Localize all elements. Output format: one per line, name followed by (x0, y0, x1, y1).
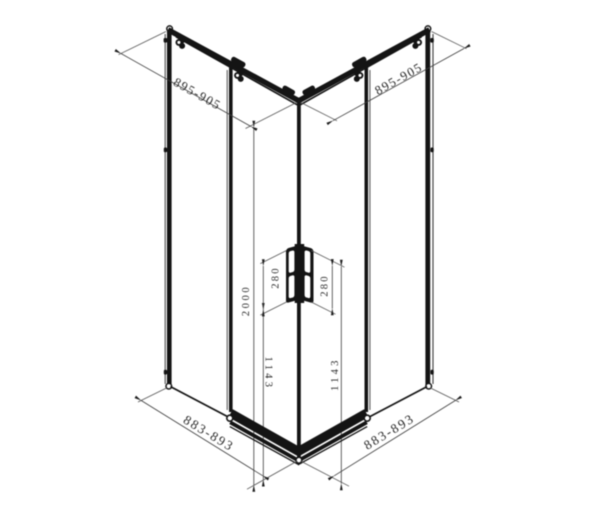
svg-text:2000: 2000 (241, 285, 252, 317)
svg-text:280: 280 (320, 274, 331, 297)
svg-text:280: 280 (271, 266, 282, 289)
svg-text:1143: 1143 (330, 357, 341, 391)
svg-text:1143: 1143 (263, 356, 274, 390)
